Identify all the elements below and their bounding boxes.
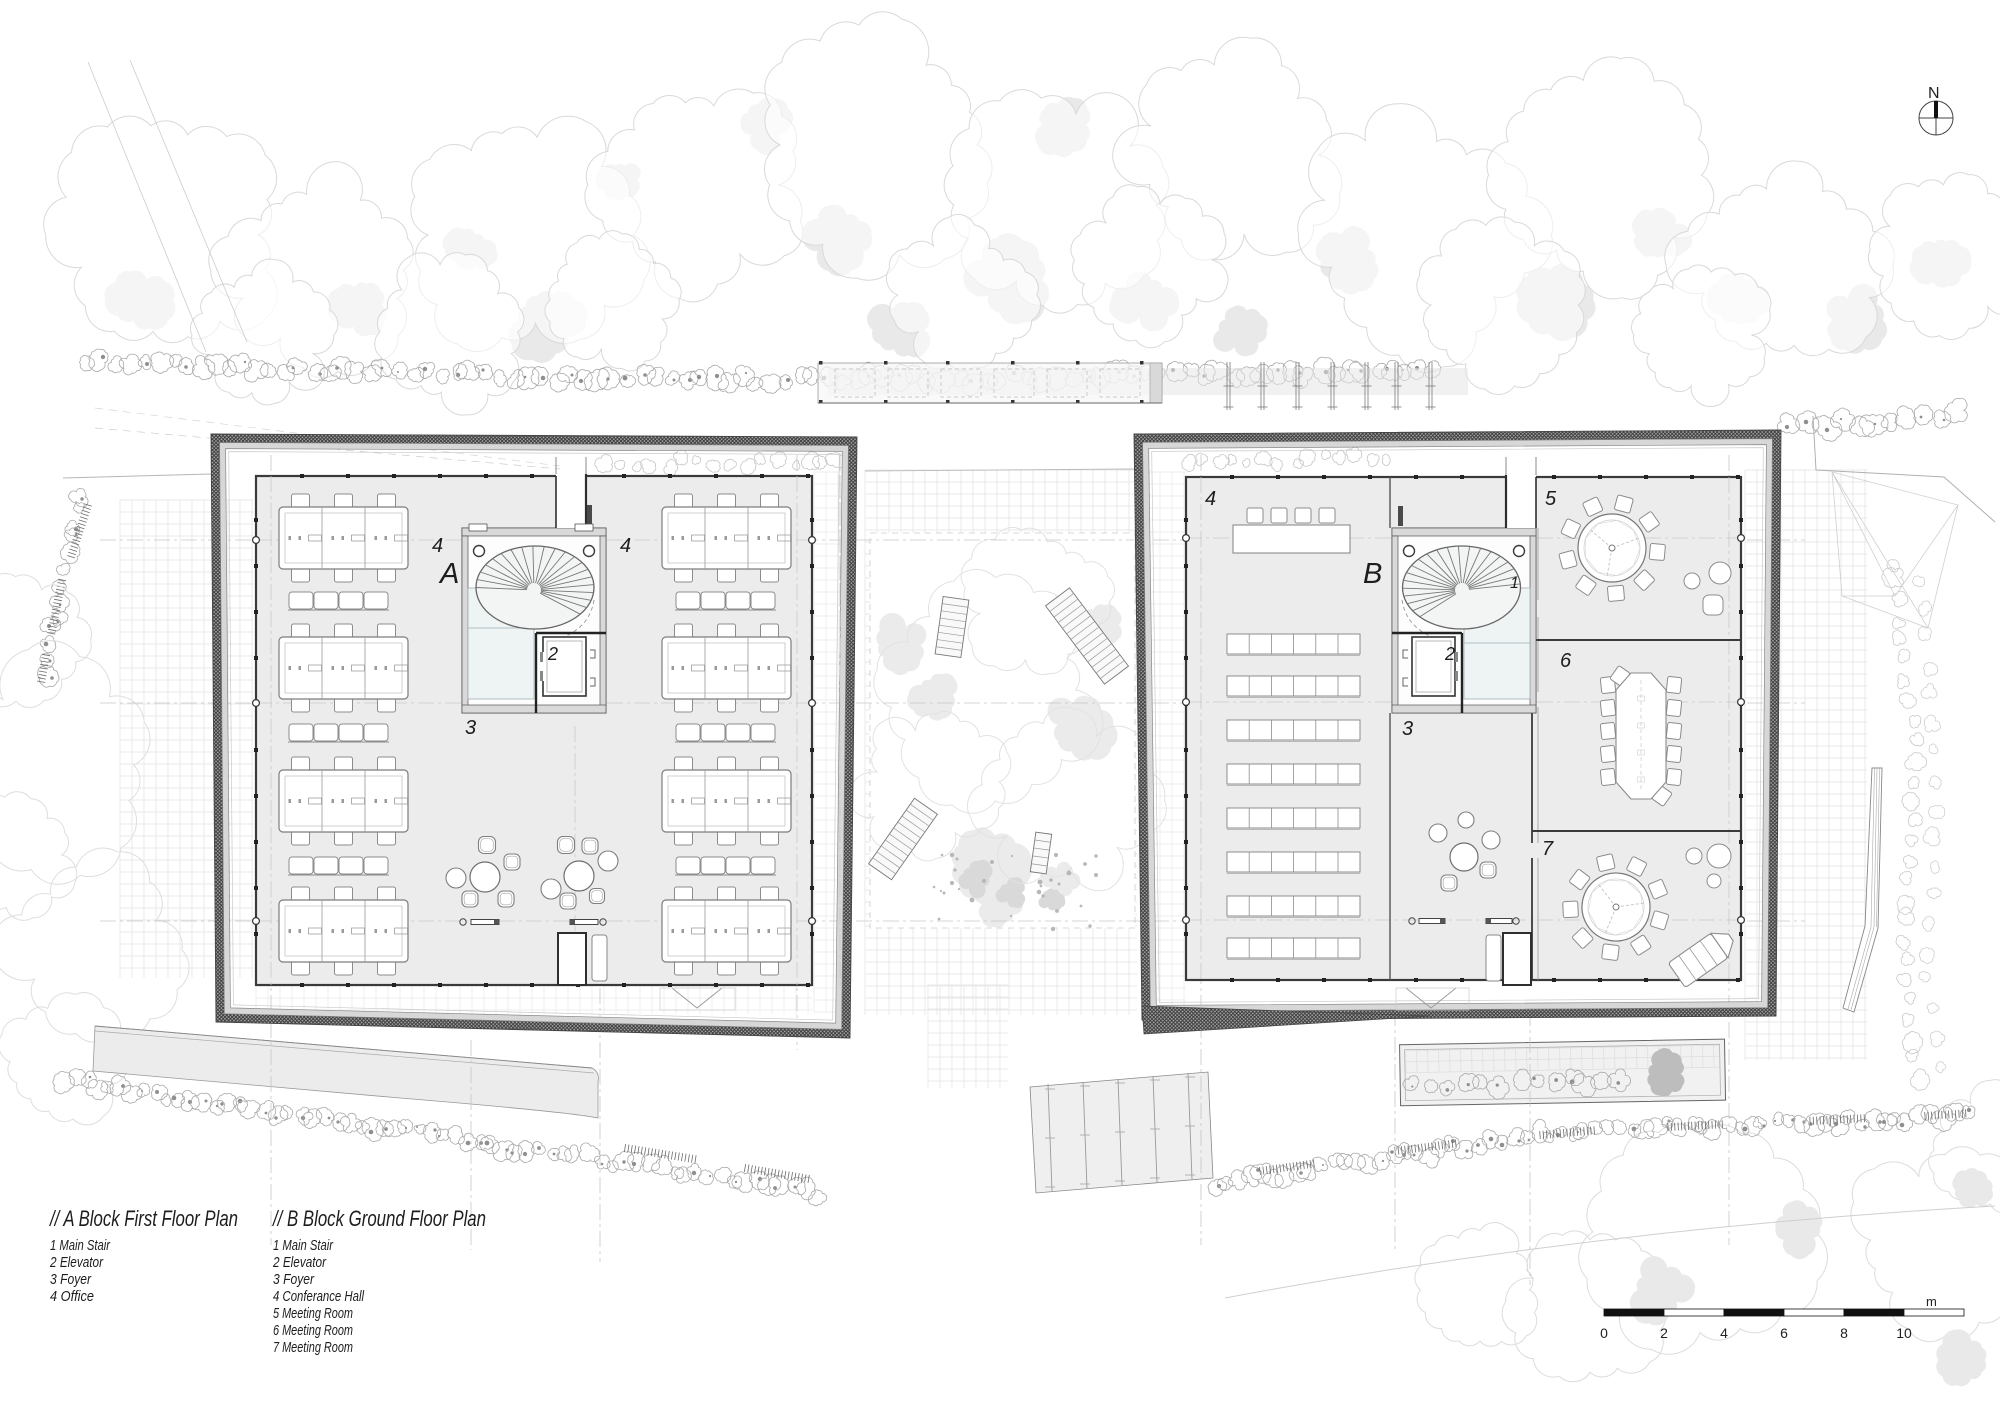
svg-text:B: B bbox=[1363, 558, 1382, 590]
svg-text:3: 3 bbox=[1402, 718, 1413, 740]
svg-text:2 Elevator: 2 Elevator bbox=[272, 1254, 327, 1271]
svg-text:5: 5 bbox=[1545, 488, 1557, 510]
svg-text:m: m bbox=[1926, 1294, 1937, 1309]
svg-text:1 Main Stair: 1 Main Stair bbox=[273, 1237, 334, 1254]
svg-text:4 Conferance Hall: 4 Conferance Hall bbox=[273, 1288, 364, 1305]
svg-text:// B Block Ground Floor Plan: // B Block Ground Floor Plan bbox=[271, 1206, 486, 1231]
svg-text:1: 1 bbox=[1510, 575, 1519, 592]
svg-text:4: 4 bbox=[1205, 488, 1216, 510]
svg-text:N: N bbox=[1928, 85, 1940, 102]
svg-text:7 Meeting Room: 7 Meeting Room bbox=[273, 1339, 353, 1356]
svg-text:2: 2 bbox=[1660, 1325, 1668, 1341]
svg-text:4 Office: 4 Office bbox=[50, 1288, 94, 1305]
svg-text:6: 6 bbox=[1780, 1325, 1788, 1341]
svg-text:A: A bbox=[438, 558, 459, 590]
svg-text:3 Foyer: 3 Foyer bbox=[50, 1271, 92, 1288]
svg-text:1 Main Stair: 1 Main Stair bbox=[50, 1237, 111, 1254]
svg-text:2: 2 bbox=[1444, 644, 1455, 664]
svg-text:2 Elevator: 2 Elevator bbox=[49, 1254, 104, 1271]
svg-text:2: 2 bbox=[547, 644, 558, 664]
svg-text:0: 0 bbox=[1600, 1325, 1608, 1341]
svg-text:4: 4 bbox=[1720, 1325, 1728, 1341]
svg-text:7: 7 bbox=[1542, 838, 1554, 860]
svg-text:4: 4 bbox=[620, 535, 631, 557]
svg-text:8: 8 bbox=[1840, 1325, 1848, 1341]
svg-text:4: 4 bbox=[432, 535, 443, 557]
svg-text:3 Foyer: 3 Foyer bbox=[273, 1271, 315, 1288]
svg-text:6 Meeting Room: 6 Meeting Room bbox=[273, 1322, 353, 1339]
svg-text:3: 3 bbox=[465, 717, 476, 739]
svg-text:// A Block First Floor Plan: // A Block First Floor Plan bbox=[48, 1206, 238, 1231]
svg-text:6: 6 bbox=[1560, 650, 1572, 672]
svg-text:10: 10 bbox=[1896, 1325, 1912, 1341]
svg-text:5 Meeting Room: 5 Meeting Room bbox=[273, 1305, 353, 1322]
